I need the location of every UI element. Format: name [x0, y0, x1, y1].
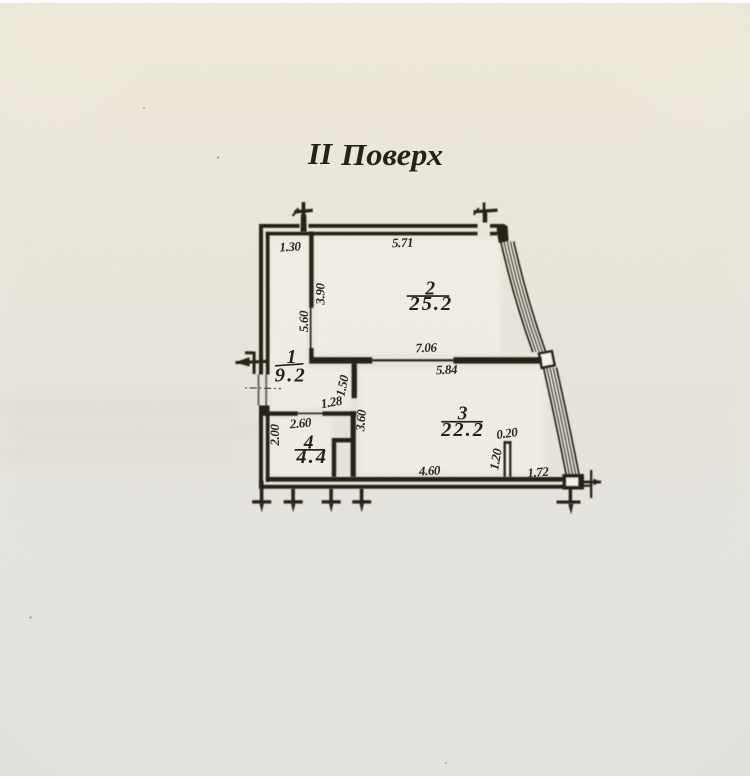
svg-text:0.20: 0.20: [495, 424, 519, 442]
svg-text:5.71: 5.71: [392, 235, 414, 251]
svg-text:5.60: 5.60: [296, 310, 311, 332]
svg-text:25.2: 25.2: [408, 293, 453, 315]
svg-text:9.2: 9.2: [275, 365, 307, 387]
svg-text:1.72: 1.72: [527, 464, 550, 481]
svg-text:2.60: 2.60: [288, 414, 312, 431]
svg-text:1.30: 1.30: [279, 238, 302, 254]
svg-text:2.00: 2.00: [267, 424, 282, 447]
svg-text:4.60: 4.60: [418, 462, 442, 478]
svg-text:7.06: 7.06: [415, 340, 438, 356]
svg-text:22.2: 22.2: [440, 419, 485, 441]
svg-text:3.60: 3.60: [352, 408, 369, 432]
svg-text:II: II: [307, 136, 333, 171]
svg-text:Поверх: Поверх: [340, 137, 443, 172]
svg-text:4.4: 4.4: [295, 446, 328, 468]
svg-text:5.84: 5.84: [436, 362, 459, 378]
svg-text:3.90: 3.90: [313, 283, 328, 306]
